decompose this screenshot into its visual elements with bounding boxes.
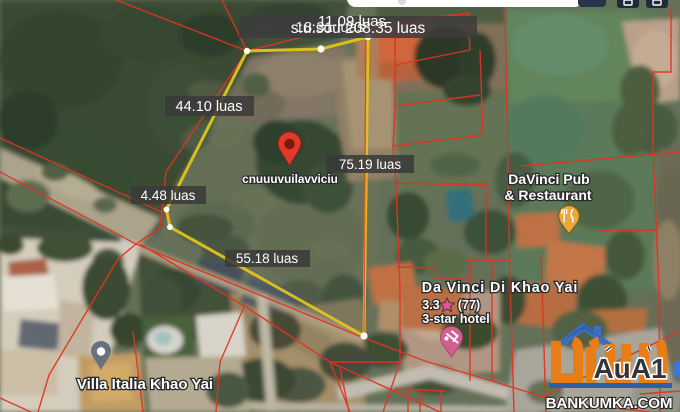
svg-text:55.18 luas: 55.18 luas <box>236 251 299 266</box>
svg-text:BANKUMKA.COM: BANKUMKA.COM <box>546 395 673 412</box>
svg-text:3.3: 3.3 <box>422 298 439 312</box>
svg-text:44.10 luas: 44.10 luas <box>176 99 243 115</box>
svg-text:AuA1: AuA1 <box>593 353 666 384</box>
svg-text:s:u:sou 208.35 luas: s:u:sou 208.35 luas <box>291 20 426 37</box>
svg-text:(77): (77) <box>458 298 480 312</box>
svg-text:Villa Italia Khao Yai: Villa Italia Khao Yai <box>77 376 213 393</box>
svg-text:Da Vinci Di Khao Yai: Da Vinci Di Khao Yai <box>422 280 579 296</box>
svg-text:& Restaurant: & Restaurant <box>504 187 591 203</box>
svg-text:DaVinci Pub: DaVinci Pub <box>508 171 589 187</box>
svg-text:75.19 luas: 75.19 luas <box>339 157 402 172</box>
svg-text:3-star hotel: 3-star hotel <box>422 312 489 326</box>
svg-text:cnuuuvuilavviciu: cnuuuvuilavviciu <box>242 172 338 186</box>
svg-text:4.48 luas: 4.48 luas <box>141 188 196 203</box>
